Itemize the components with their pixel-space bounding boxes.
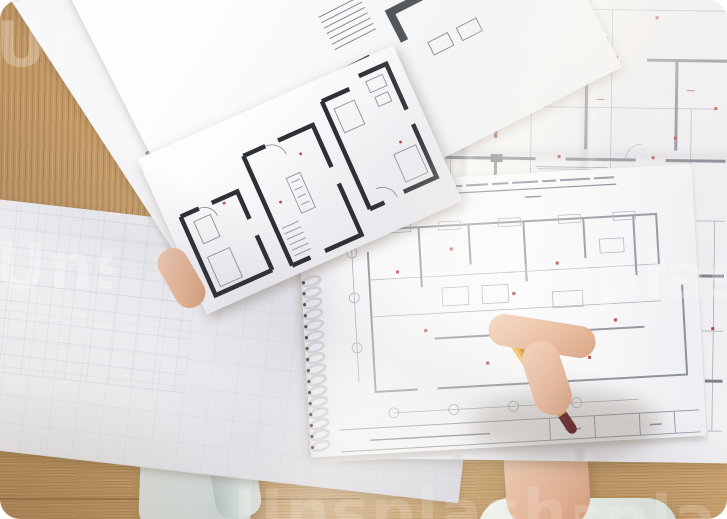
plan-title-underline [446, 177, 617, 201]
desk-photo: Unsplash Unsplash Unsplash Unsplash Unsp… [0, 0, 727, 519]
